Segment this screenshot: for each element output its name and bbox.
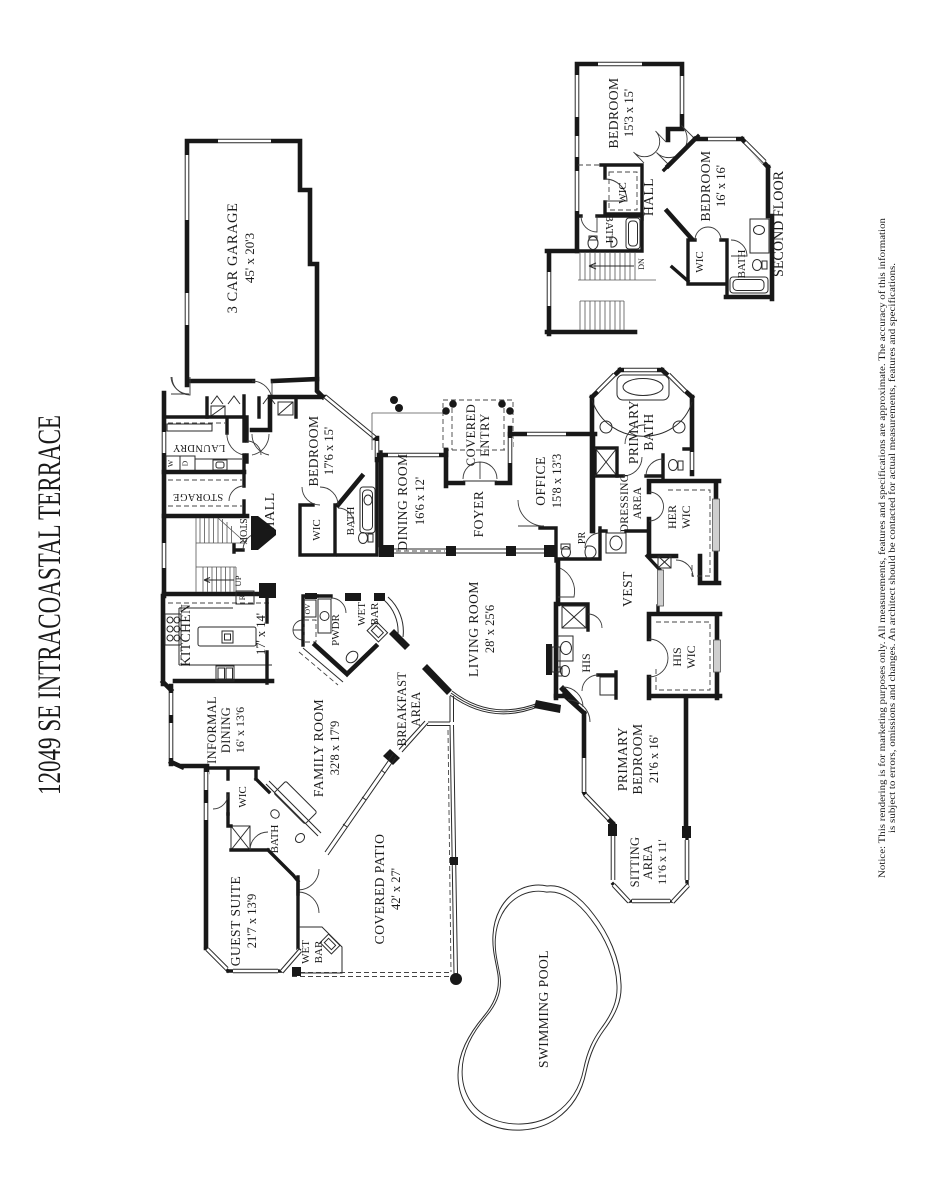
svg-text:KITCHEN: KITCHEN: [178, 604, 193, 667]
svg-text:VEST: VEST: [620, 571, 635, 607]
svg-text:WIC: WIC: [694, 251, 706, 272]
svg-text:17' x 14': 17' x 14': [254, 613, 268, 655]
svg-text:COVERED PATIO: COVERED PATIO: [372, 834, 387, 945]
svg-text:BAR: BAR: [313, 940, 325, 963]
svg-text:12049 SE INTRACOASTAL TERRACE: 12049 SE INTRACOASTAL TERRACE: [32, 415, 68, 795]
svg-text:16' x 13'6: 16' x 13'6: [233, 707, 247, 753]
svg-text:GUEST SUITE: GUEST SUITE: [228, 876, 243, 966]
svg-text:21'7 x 13'9: 21'7 x 13'9: [245, 894, 259, 949]
svg-text:BEDROOM: BEDROOM: [306, 415, 321, 486]
svg-text:11'6 x 11': 11'6 x 11': [655, 839, 669, 884]
svg-text:is subject to errors, omission: is subject to errors, omissions and chan…: [887, 263, 897, 833]
svg-text:UP: UP: [233, 575, 243, 586]
svg-text:15'8 x 13'3: 15'8 x 13'3: [550, 454, 564, 509]
svg-text:PWDR: PWDR: [330, 613, 342, 645]
svg-text:DINING ROOM: DINING ROOM: [395, 453, 410, 550]
svg-text:HALL: HALL: [641, 178, 656, 216]
svg-text:AREA: AREA: [632, 486, 644, 519]
svg-text:WIC: WIC: [617, 182, 629, 203]
svg-text:42' x 27': 42' x 27': [389, 868, 403, 910]
svg-text:AREA: AREA: [409, 691, 423, 726]
svg-text:BAR: BAR: [369, 602, 381, 625]
svg-text:45' x 20'3: 45' x 20'3: [242, 233, 257, 283]
svg-text:PRIMARY: PRIMARY: [626, 400, 641, 464]
svg-text:3 CAR GARAGE: 3 CAR GARAGE: [225, 203, 241, 314]
svg-text:HER: HER: [665, 505, 679, 529]
svg-text:21'6 x 16': 21'6 x 16': [647, 735, 661, 783]
svg-text:PRIMARY: PRIMARY: [615, 727, 630, 791]
svg-text:FOYER: FOYER: [471, 491, 486, 538]
svg-text:W: W: [166, 459, 175, 467]
svg-text:OV: OV: [303, 603, 312, 614]
svg-text:BEDROOM: BEDROOM: [698, 150, 713, 221]
svg-text:WET: WET: [300, 940, 312, 964]
svg-text:BATH: BATH: [736, 250, 748, 279]
svg-text:SWIMMING POOL: SWIMMING POOL: [536, 950, 551, 1068]
svg-text:ENTRY: ENTRY: [478, 413, 492, 456]
svg-text:WIC: WIC: [684, 645, 698, 668]
svg-text:LIVING ROOM: LIVING ROOM: [466, 581, 481, 677]
svg-text:BATH: BATH: [641, 413, 656, 450]
svg-text:SECOND FLOOR: SECOND FLOOR: [771, 171, 787, 277]
svg-text:DN: DN: [637, 258, 646, 270]
svg-text:SITTING: SITTING: [628, 837, 642, 888]
svg-text:DINING: DINING: [219, 707, 233, 753]
svg-text:D: D: [181, 460, 190, 466]
svg-text:FAMILY ROOM: FAMILY ROOM: [311, 699, 326, 797]
svg-text:DRESSING: DRESSING: [619, 474, 631, 533]
svg-text:INFORMAL: INFORMAL: [205, 696, 219, 764]
svg-text:WET: WET: [356, 602, 368, 626]
svg-text:BATH: BATH: [603, 215, 615, 244]
svg-text:LAUNDRY: LAUNDRY: [172, 442, 225, 453]
svg-text:WIC: WIC: [311, 519, 323, 540]
svg-text:17'6 x 15': 17'6 x 15': [322, 427, 336, 475]
svg-text:28' x 25'6: 28' x 25'6: [483, 605, 497, 653]
svg-text:BEDROOM: BEDROOM: [606, 77, 621, 148]
svg-text:R: R: [237, 594, 247, 600]
svg-text:16' x 16': 16' x 16': [714, 165, 728, 207]
svg-text:STORAGE: STORAGE: [173, 491, 223, 502]
svg-text:Notice: This rendering is for: Notice: This rendering is for marketing …: [877, 217, 887, 878]
svg-text:BREAKFAST: BREAKFAST: [395, 672, 409, 747]
svg-text:OFFICE: OFFICE: [533, 456, 548, 506]
svg-text:16'6 x 12': 16'6 x 12': [413, 477, 427, 525]
svg-text:HIS: HIS: [670, 647, 684, 666]
svg-text:AREA: AREA: [641, 844, 655, 879]
svg-text:HIS: HIS: [579, 653, 593, 672]
svg-text:WIC: WIC: [679, 505, 693, 528]
svg-text:COVERED: COVERED: [464, 404, 478, 467]
svg-text:BATH: BATH: [269, 825, 281, 854]
svg-text:BEDROOM: BEDROOM: [630, 723, 645, 794]
svg-text:15'3 x 15': 15'3 x 15': [622, 89, 636, 137]
svg-text:WIC: WIC: [237, 786, 249, 807]
svg-text:HALL: HALL: [263, 492, 278, 531]
svg-text:32'8 x 17'9: 32'8 x 17'9: [328, 721, 342, 776]
